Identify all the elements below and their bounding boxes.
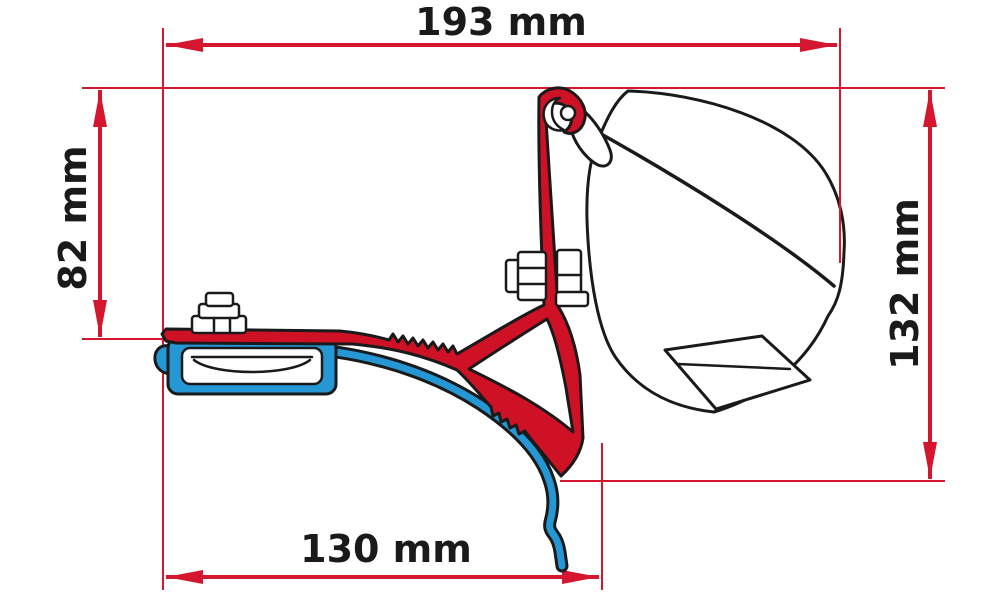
dimension-bottom-label: 130 mm bbox=[300, 527, 472, 571]
hook-pin-hole bbox=[561, 106, 575, 120]
dimension-top-label: 193 mm bbox=[415, 0, 587, 44]
arrowhead-right-icon bbox=[800, 38, 837, 52]
bracket-bolt-group bbox=[506, 250, 588, 306]
arrowhead-up-icon bbox=[93, 90, 107, 127]
arrowhead-right-icon bbox=[562, 570, 599, 584]
bracket-bolt-plate bbox=[556, 292, 588, 306]
dimension-right-label: 132 mm bbox=[883, 198, 927, 370]
arrowhead-up-icon bbox=[923, 90, 937, 127]
dimension-left-label: 82 mm bbox=[51, 145, 95, 290]
dimension-right-height: 132 mm bbox=[883, 90, 937, 479]
adapter-cross-section-diagram: 193 mm 82 mm 132 mm 130 mm bbox=[0, 0, 1000, 600]
dimension-left-height: 82 mm bbox=[51, 90, 107, 337]
dimension-bottom-width: 130 mm bbox=[166, 527, 599, 584]
rail-bolt-group bbox=[192, 293, 246, 333]
rail-bolt-cap bbox=[206, 293, 233, 306]
bracket-bolt-head bbox=[518, 252, 546, 300]
arrowhead-left-icon bbox=[166, 38, 203, 52]
arrowhead-down-icon bbox=[93, 300, 107, 337]
dimension-top-width: 193 mm bbox=[166, 0, 837, 52]
technical-drawing-canvas: 193 mm 82 mm 132 mm 130 mm bbox=[0, 0, 1000, 600]
arrowhead-left-icon bbox=[166, 570, 203, 584]
arrowhead-down-icon bbox=[923, 442, 937, 479]
